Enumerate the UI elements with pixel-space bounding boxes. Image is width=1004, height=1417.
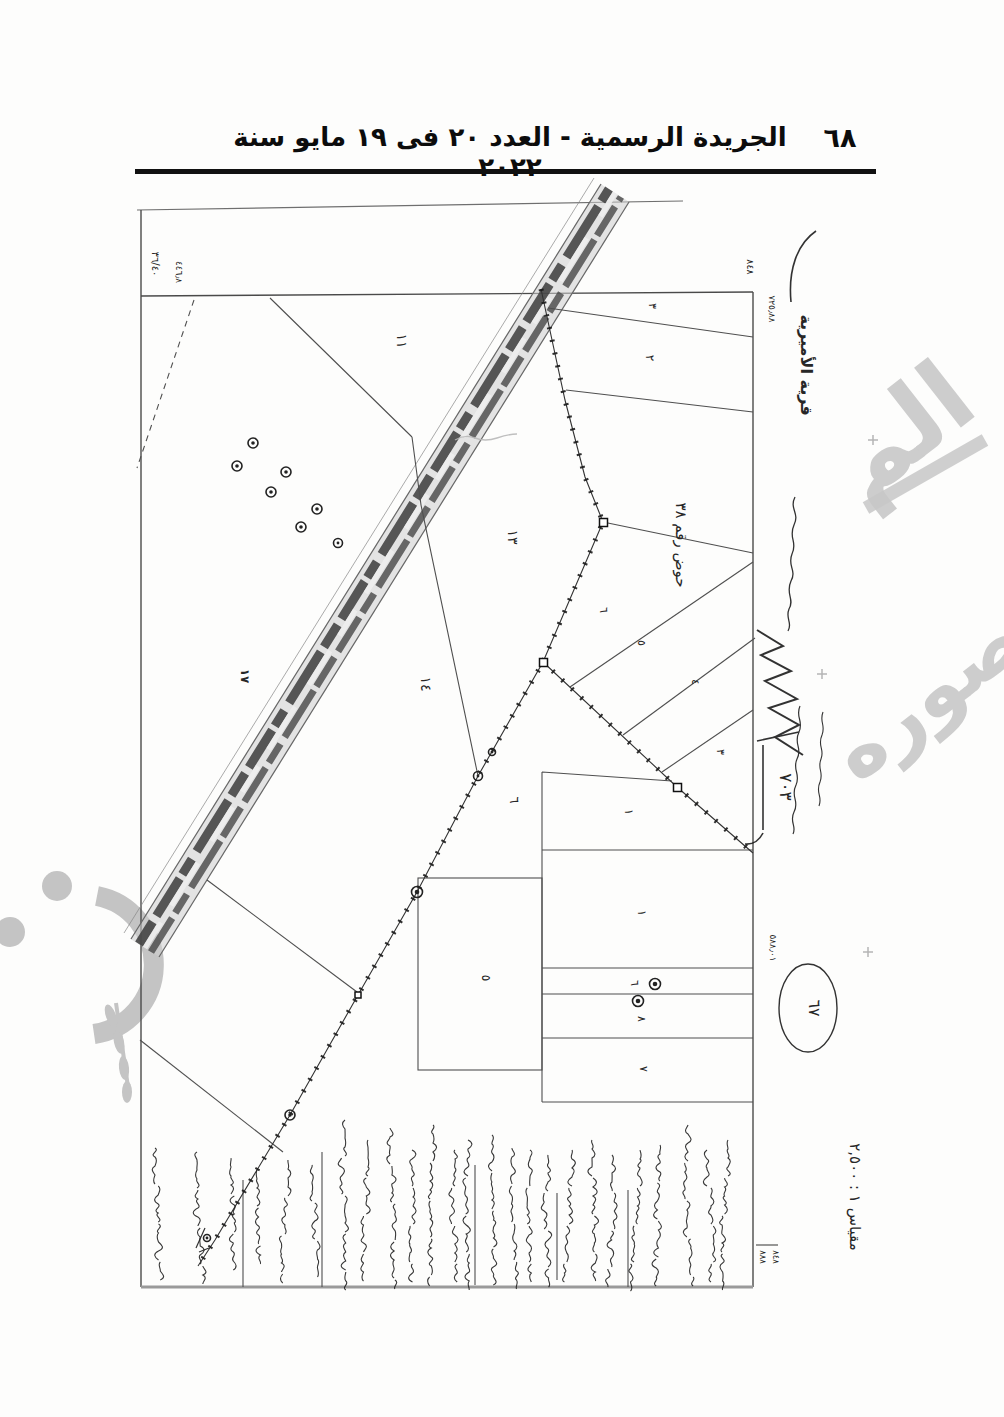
margin-number-right-top: ٨٤٨ — [745, 259, 756, 274]
margin-number-bottom-b: ٨٤٨ — [771, 1250, 781, 1264]
parcel-number-6: ٦ — [507, 797, 522, 804]
strip-number-6: ٦ — [597, 607, 610, 613]
block-number-6: ٦ — [628, 980, 641, 986]
margin-number-top-left-value: ٤٤٦٫٨ — [174, 261, 184, 283]
margin-number-top-left-fraction: ٣٦/٤٠ — [150, 252, 161, 277]
margin-number-bottom-a: ٨٨٨ — [758, 1250, 768, 1264]
junction-square-markers — [355, 519, 682, 999]
gazette-page: الجريدة الرسمية - العدد ٢٠ فى ١٩ مايو سن… — [0, 0, 1004, 1417]
oval-number: ٦٧ — [805, 999, 824, 1017]
survey-note-number: ٧٠٣ — [776, 773, 796, 800]
block-number-8: ٨ — [635, 1016, 648, 1022]
parcel-number-14: ١٤ — [418, 676, 434, 691]
village-label: قرية الأميرية — [797, 314, 816, 415]
parcel-number-11: ١١ — [394, 333, 410, 348]
strip-number-3: ٣ — [714, 749, 727, 755]
margin-number-right-upper: ٧٢٥٫٨٨ — [767, 295, 777, 322]
scale-label: مقياس ١ : ٢,٥٠٠ — [846, 1143, 864, 1250]
parcel-number-13: ١٣ — [505, 529, 521, 545]
watermark-text-bottom: صوره — [811, 590, 1004, 800]
road-number: ١٧ — [238, 669, 252, 684]
stamp-watermark: الم صوره — [806, 338, 1004, 957]
map-border — [137, 201, 753, 1287]
margin-number-right-lower: ٥٨٨٫٠١ — [768, 934, 778, 961]
basin-label: حوض رقم ٣٨ — [672, 502, 690, 587]
block-number-7: ٧ — [637, 1066, 650, 1072]
block-number-1b: ١ — [635, 910, 649, 916]
parcel-number-5: ٥ — [479, 975, 493, 981]
parcel-number-t2: ٢ — [643, 355, 657, 361]
cadastral-map: الم صوره — [0, 0, 1004, 1417]
watermark-text-top: الم — [806, 338, 997, 523]
emblem-watermark — [0, 871, 154, 1103]
owner-names-handwriting — [152, 1120, 730, 1292]
parcel-number-t3: ٣ — [646, 303, 659, 309]
strip-number-5: ٥ — [635, 640, 648, 646]
block-number-1a: ١ — [622, 809, 636, 815]
strip-number-4: ٤ — [689, 679, 702, 685]
